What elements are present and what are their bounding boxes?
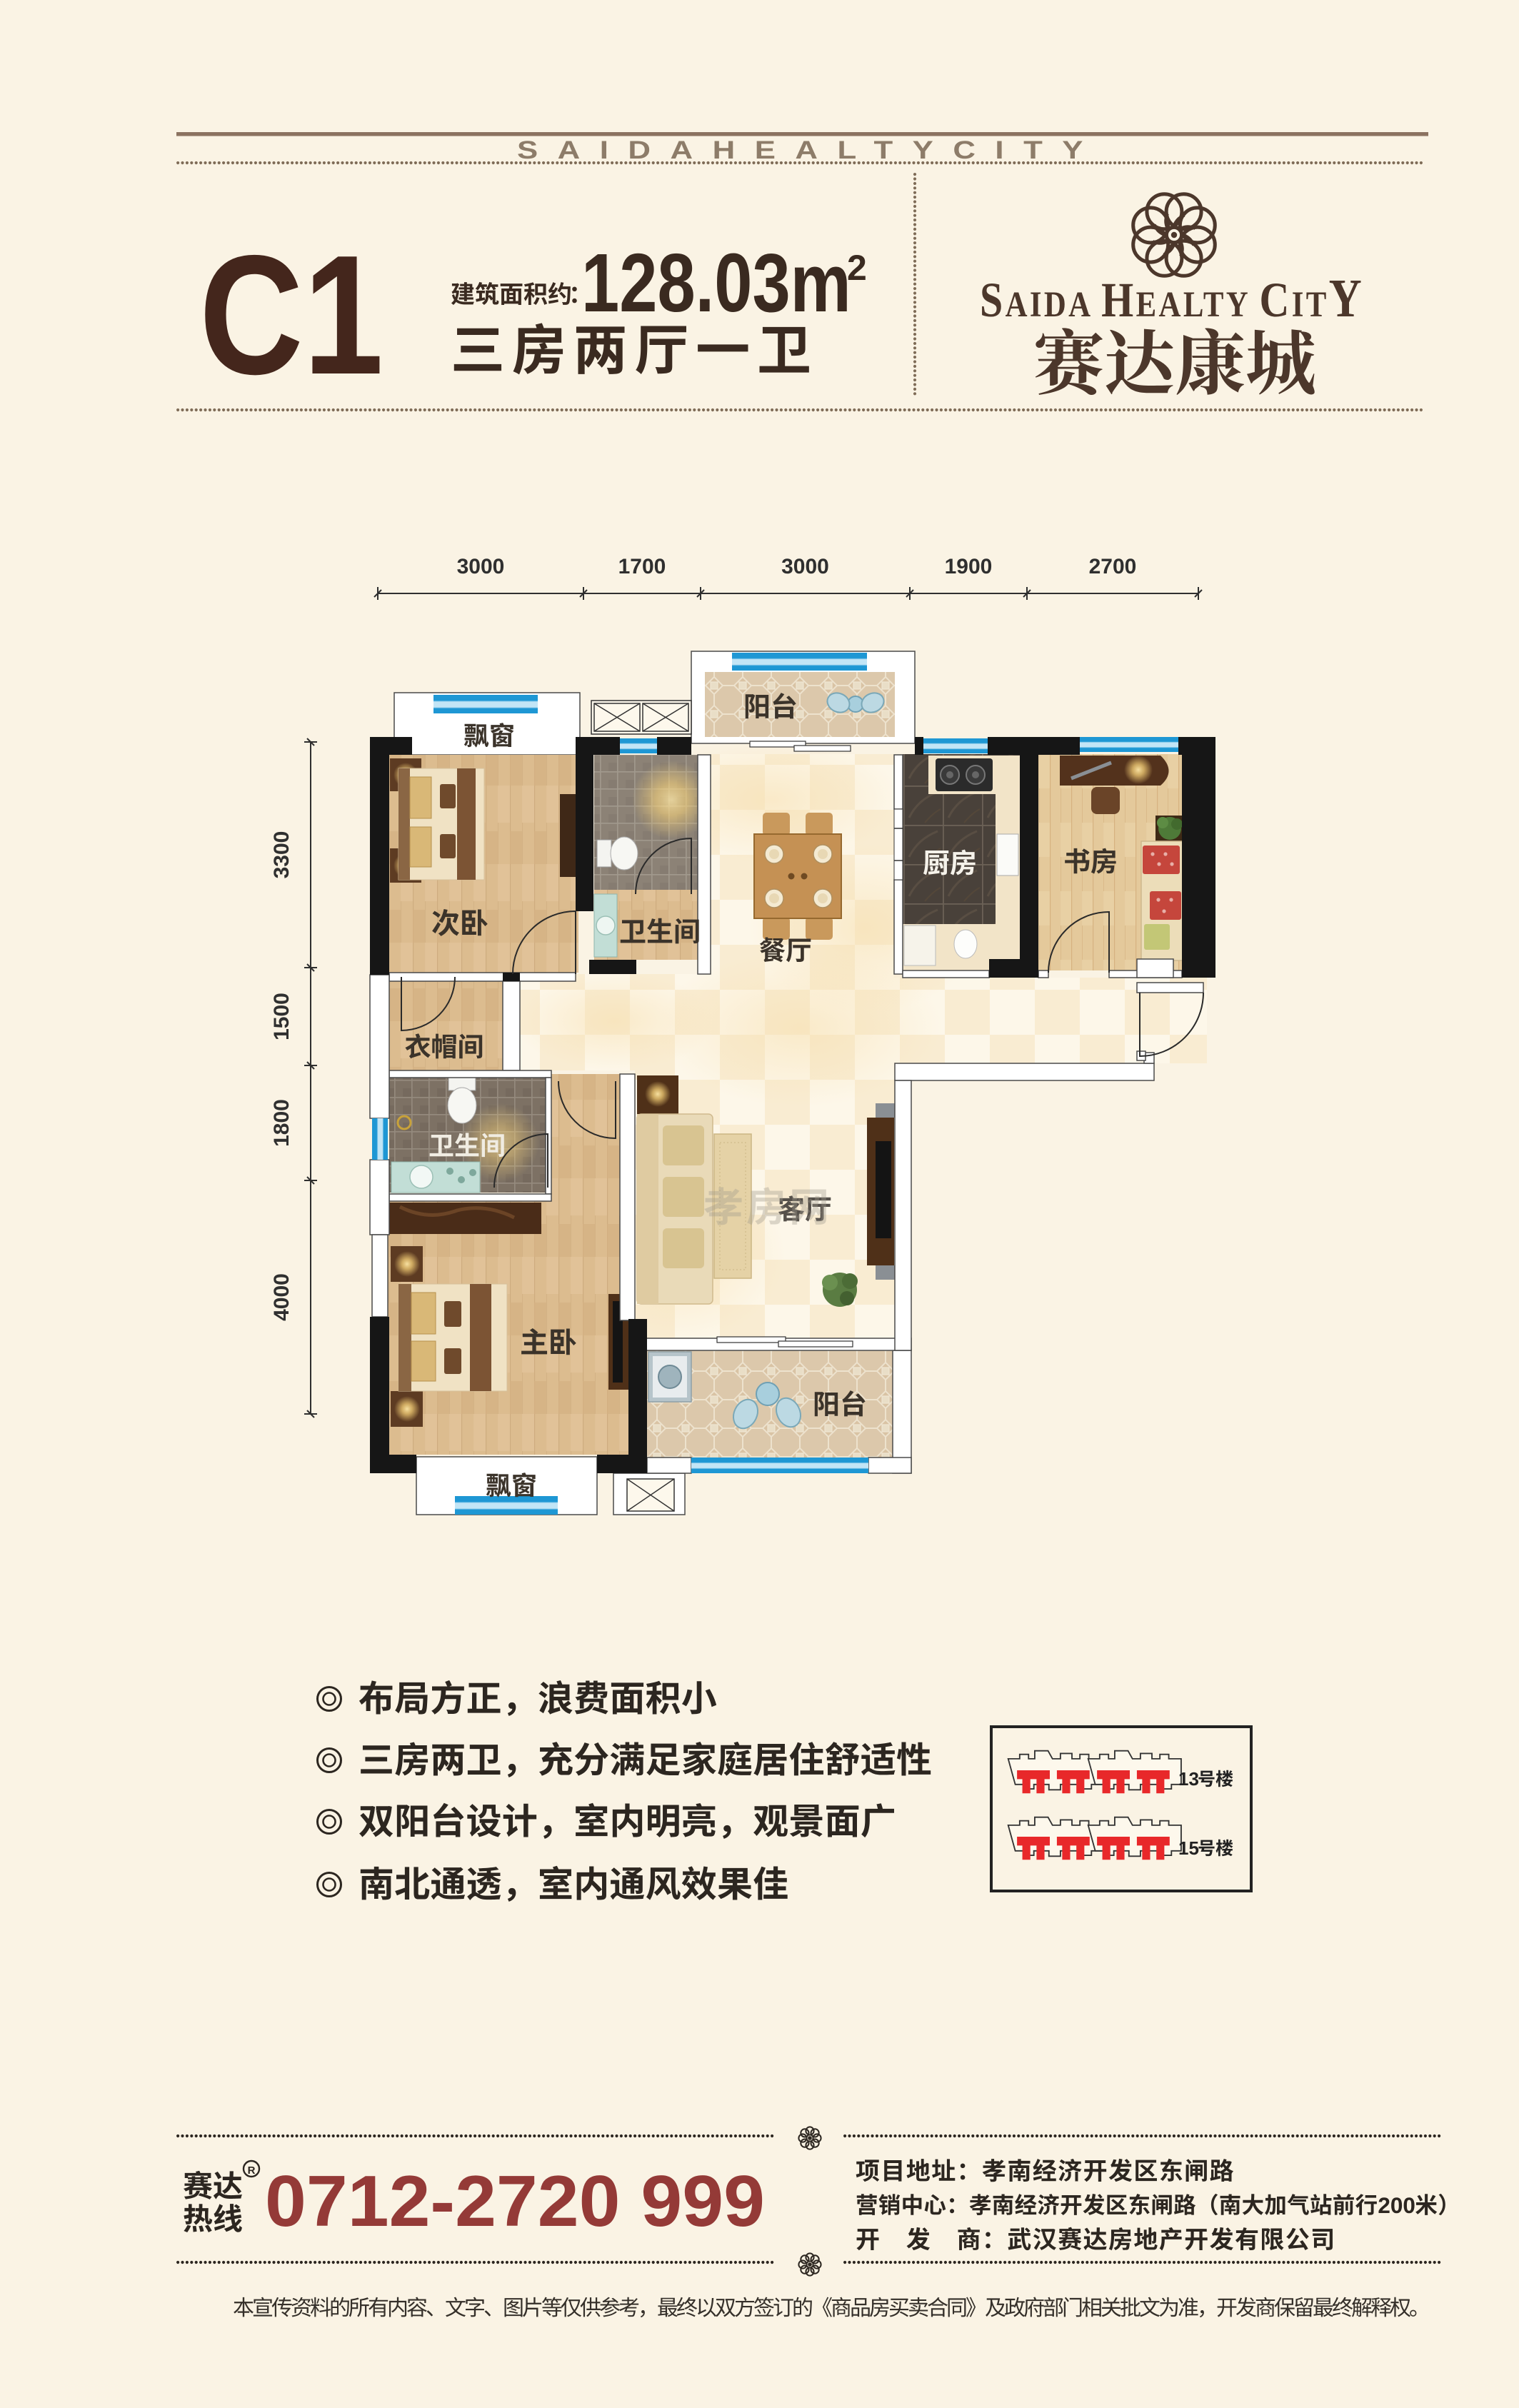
svg-text:128.03m: 128.03m <box>581 236 851 329</box>
svg-text:R: R <box>248 2164 256 2177</box>
svg-text:4000: 4000 <box>270 1273 294 1321</box>
svg-text:1700: 1700 <box>618 555 666 578</box>
svg-text:3000: 3000 <box>457 555 505 578</box>
svg-text:1900: 1900 <box>945 555 993 578</box>
svg-text:15: 15 <box>1178 1837 1199 1859</box>
svg-text:3000: 3000 <box>781 555 829 578</box>
svg-text:3300: 3300 <box>270 831 294 879</box>
svg-text:SAIDAHEALTYCITY: SAIDAHEALTYCITY <box>517 136 1103 164</box>
svg-text:0712-2720 999: 0712-2720 999 <box>265 2162 765 2242</box>
svg-text:C1: C1 <box>199 221 383 410</box>
svg-text:1500: 1500 <box>270 993 294 1040</box>
svg-text:2: 2 <box>847 248 867 288</box>
svg-text:200: 200 <box>1378 2192 1415 2218</box>
svg-text:2700: 2700 <box>1089 555 1137 578</box>
svg-text:13: 13 <box>1178 1768 1199 1790</box>
svg-text:1800: 1800 <box>270 1099 294 1147</box>
